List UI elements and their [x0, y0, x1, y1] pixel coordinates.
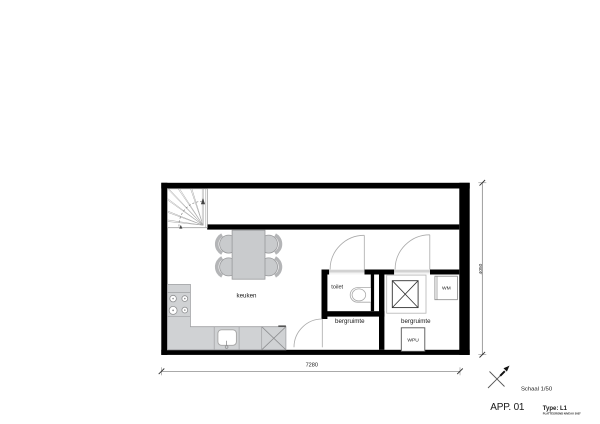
svg-text:WPU: WPU: [407, 337, 419, 343]
svg-text:bergruimte: bergruimte: [401, 318, 431, 325]
svg-text:Schaal 1/50: Schaal 1/50: [521, 387, 553, 393]
svg-text:WM: WM: [442, 286, 451, 292]
svg-text:Type: L1: Type: L1: [543, 406, 568, 412]
svg-text:keuken: keuken: [237, 293, 258, 300]
svg-text:7280: 7280: [306, 362, 318, 368]
svg-text:PLATTEGROND NIVEAU 5007: PLATTEGROND NIVEAU 5007: [543, 412, 581, 416]
svg-text:bergruimte: bergruimte: [335, 318, 365, 325]
svg-text:toilet: toilet: [331, 284, 343, 290]
svg-text:4050: 4050: [478, 263, 484, 274]
svg-text:APP. 01: APP. 01: [490, 402, 525, 413]
